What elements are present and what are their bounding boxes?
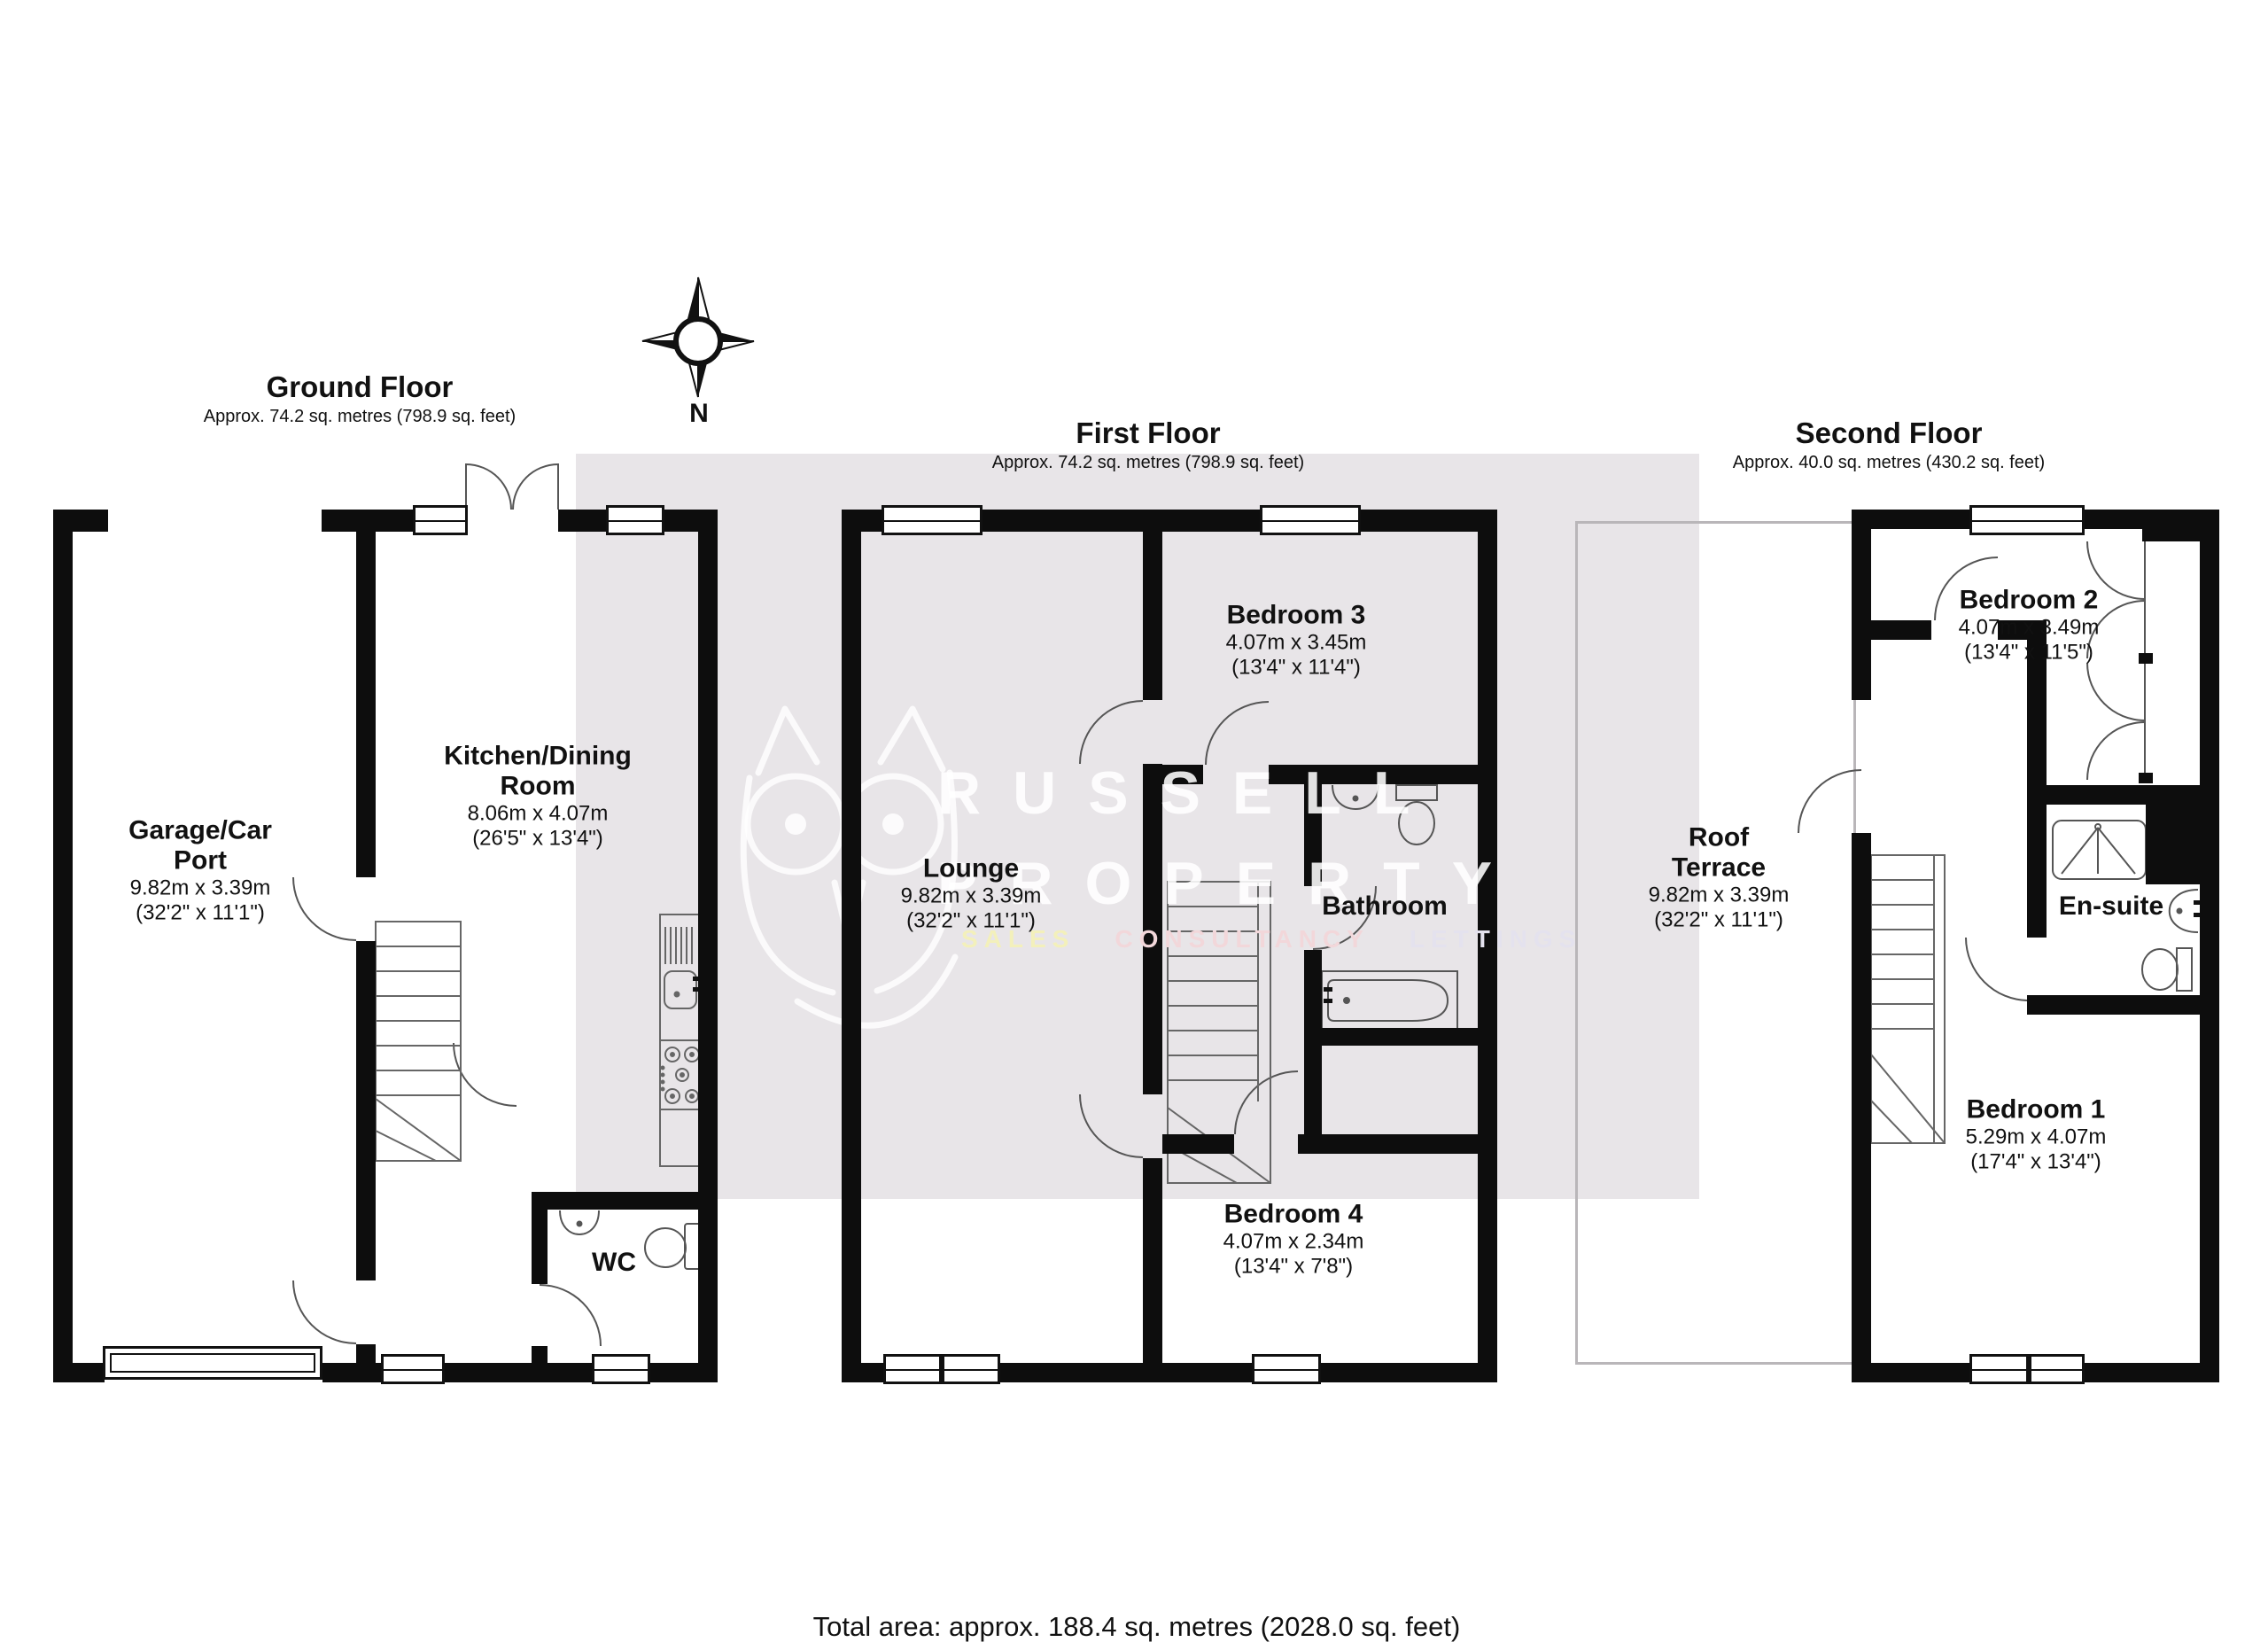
room-label-bathroom: Bathroom: [1322, 891, 1448, 922]
room-metric: 9.82m x 3.39m: [901, 884, 1042, 908]
room-imperial: (13'4" x 11'4"): [1226, 655, 1367, 679]
chimney-void: [2146, 805, 2200, 884]
wall: [53, 1363, 105, 1382]
wall: [356, 941, 376, 1280]
wall: [1304, 784, 1322, 886]
room-name: Port: [128, 846, 272, 876]
room-metric: 9.82m x 3.39m: [128, 876, 272, 900]
door-arc: [292, 877, 356, 941]
total-area-text: Total area: approx. 188.4 sq. metres (20…: [813, 1611, 1461, 1643]
wall: [1871, 620, 1931, 640]
closet-door-arc: [2086, 721, 2145, 780]
wall: [2027, 995, 2047, 1015]
room-label-wc: WC: [592, 1248, 636, 1278]
room-imperial: (32'2" x 11'1"): [1649, 907, 1790, 931]
wall: [1304, 1028, 1478, 1046]
wall: [1304, 1046, 1322, 1134]
floor-title-text: First Floor: [992, 416, 1304, 450]
door-arc: [292, 1280, 356, 1344]
wall: [2047, 995, 2200, 1015]
stairs-second: [1871, 855, 1945, 1143]
room-label-lounge: Lounge 9.82m x 3.39m (32'2" x 11'1"): [901, 854, 1042, 933]
room-name: Terrace: [1649, 853, 1790, 883]
roof-terrace-outline: [1575, 521, 1856, 1365]
wall: [53, 510, 108, 532]
second-floor-title: Second Floor Approx. 40.0 sq. metres (43…: [1733, 416, 2045, 473]
wall: [2047, 785, 2200, 805]
window: [2029, 1354, 2085, 1384]
room-name: Garage/Car: [128, 815, 272, 845]
door-arc: [1965, 938, 2029, 1001]
wall: [2085, 1363, 2219, 1382]
wall: [650, 1363, 718, 1382]
garage-door: [103, 1346, 322, 1380]
closet-stub: [2139, 653, 2153, 664]
wall: [1143, 532, 1162, 700]
shower-icon: [2053, 821, 2146, 879]
wall: [698, 510, 718, 1382]
wall: [445, 1363, 592, 1382]
room-name: Kitchen/Dining: [444, 741, 632, 771]
room-name: Bathroom: [1322, 891, 1448, 922]
room-metric: 5.29m x 4.07m: [1966, 1125, 2107, 1149]
floor-title-text: Second Floor: [1733, 416, 2045, 450]
compass-north-label: N: [689, 399, 709, 429]
wall: [983, 510, 1260, 532]
wall: [558, 510, 606, 532]
wall: [1478, 510, 1497, 1382]
wall: [53, 510, 73, 1382]
floor-subtitle-text: Approx. 74.2 sq. metres (798.9 sq. feet): [204, 407, 516, 427]
wall: [2142, 529, 2200, 541]
window: [606, 505, 664, 535]
room-label-ensuite: En-suite: [2059, 891, 2163, 922]
window: [381, 1354, 445, 1384]
floorplan-page: RUSSELL PROPERTY SALES CONSULTANCY LETTI…: [0, 0, 2268, 1650]
room-imperial: (26'5" x 13'4"): [444, 826, 632, 850]
room-metric: 4.07m x 2.34m: [1223, 1230, 1364, 1254]
wall: [532, 1346, 548, 1382]
wall: [1361, 510, 1497, 532]
window: [1260, 505, 1361, 535]
wall: [356, 510, 376, 877]
wall: [842, 1363, 883, 1382]
room-metric: 9.82m x 3.39m: [1649, 883, 1790, 907]
closet-door-arc: [2086, 663, 2145, 721]
room-label-roof-terrace: Roof Terrace 9.82m x 3.39m (32'2" x 11'1…: [1649, 822, 1790, 931]
floor-title-text: Ground Floor: [204, 370, 516, 404]
door-arc: [453, 1043, 517, 1107]
closet-stub: [2139, 773, 2153, 783]
watermark-band: [576, 454, 1699, 1199]
door-arc: [466, 463, 512, 510]
window: [592, 1354, 650, 1384]
room-label-garage: Garage/Car Port 9.82m x 3.39m (32'2" x 1…: [128, 815, 272, 924]
wall: [1143, 1158, 1162, 1363]
wall: [1269, 765, 1478, 784]
floor-subtitle-text: Approx. 40.0 sq. metres (430.2 sq. feet): [1733, 453, 2045, 473]
wall: [842, 510, 882, 532]
room-metric: 8.06m x 4.07m: [444, 802, 632, 826]
window: [942, 1354, 1000, 1384]
window: [883, 1354, 942, 1384]
first-floor-title: First Floor Approx. 74.2 sq. metres (798…: [992, 416, 1304, 473]
toilet-icon: [2142, 949, 2178, 990]
sink-icon: [560, 1210, 599, 1234]
wall: [2200, 510, 2219, 1382]
sink-icon: [2170, 890, 2198, 932]
wall: [2027, 640, 2047, 938]
room-name: WC: [592, 1248, 636, 1278]
wall: [1321, 1363, 1497, 1382]
room-name: Bedroom 4: [1223, 1200, 1364, 1230]
room-name: En-suite: [2059, 891, 2163, 922]
door-arc: [540, 1284, 602, 1346]
wall: [532, 1192, 718, 1210]
room-label-bedroom2: Bedroom 2 4.07m x 3.49m (13'4" x 11'5"): [1959, 586, 2100, 665]
room-imperial: (17'4" x 13'4"): [1966, 1149, 2107, 1173]
wall: [842, 510, 861, 1382]
room-name: Roof: [1649, 822, 1790, 852]
wall: [1162, 1134, 1234, 1154]
wall: [1000, 1363, 1252, 1382]
floor-subtitle-text: Approx. 74.2 sq. metres (798.9 sq. feet): [992, 453, 1304, 473]
window: [413, 505, 468, 535]
wall: [1298, 1134, 1478, 1154]
room-metric: 4.07m x 3.45m: [1226, 631, 1367, 655]
wall: [1162, 765, 1203, 784]
room-label-kitchen: Kitchen/Dining Room 8.06m x 4.07m (26'5"…: [444, 741, 632, 850]
room-name: Bedroom 1: [1966, 1095, 2107, 1125]
room-label-bedroom3: Bedroom 3 4.07m x 3.45m (13'4" x 11'4"): [1226, 601, 1367, 680]
door-arc: [512, 463, 558, 510]
wall: [532, 1210, 548, 1284]
room-name: Room: [444, 772, 632, 802]
room-name: Bedroom 3: [1226, 601, 1367, 631]
room-name: Lounge: [901, 854, 1042, 884]
room-metric: 4.07m x 3.49m: [1959, 616, 2100, 640]
room-name: Bedroom 2: [1959, 586, 2100, 616]
wall: [1852, 833, 1871, 1382]
ground-floor-title: Ground Floor Approx. 74.2 sq. metres (79…: [204, 370, 516, 427]
stairs-ground: [376, 922, 461, 1161]
window: [882, 505, 983, 535]
wall: [1852, 510, 1871, 700]
window: [1969, 505, 2085, 535]
room-label-bedroom4: Bedroom 4 4.07m x 2.34m (13'4" x 7'8"): [1223, 1200, 1364, 1279]
window: [1969, 1354, 2029, 1384]
toilet-tank: [2177, 948, 2192, 991]
compass-icon: [642, 277, 754, 397]
room-imperial: (32'2" x 11'1"): [901, 908, 1042, 932]
room-imperial: (13'4" x 7'8"): [1223, 1254, 1364, 1278]
room-label-bedroom1: Bedroom 1 5.29m x 4.07m (17'4" x 13'4"): [1966, 1095, 2107, 1174]
wall: [356, 1344, 376, 1382]
toilet-icon: [645, 1228, 686, 1267]
room-imperial: (13'4" x 11'5"): [1959, 640, 2100, 664]
window: [1252, 1354, 1321, 1384]
room-imperial: (32'2" x 11'1"): [128, 900, 272, 924]
wall: [1143, 764, 1162, 1094]
